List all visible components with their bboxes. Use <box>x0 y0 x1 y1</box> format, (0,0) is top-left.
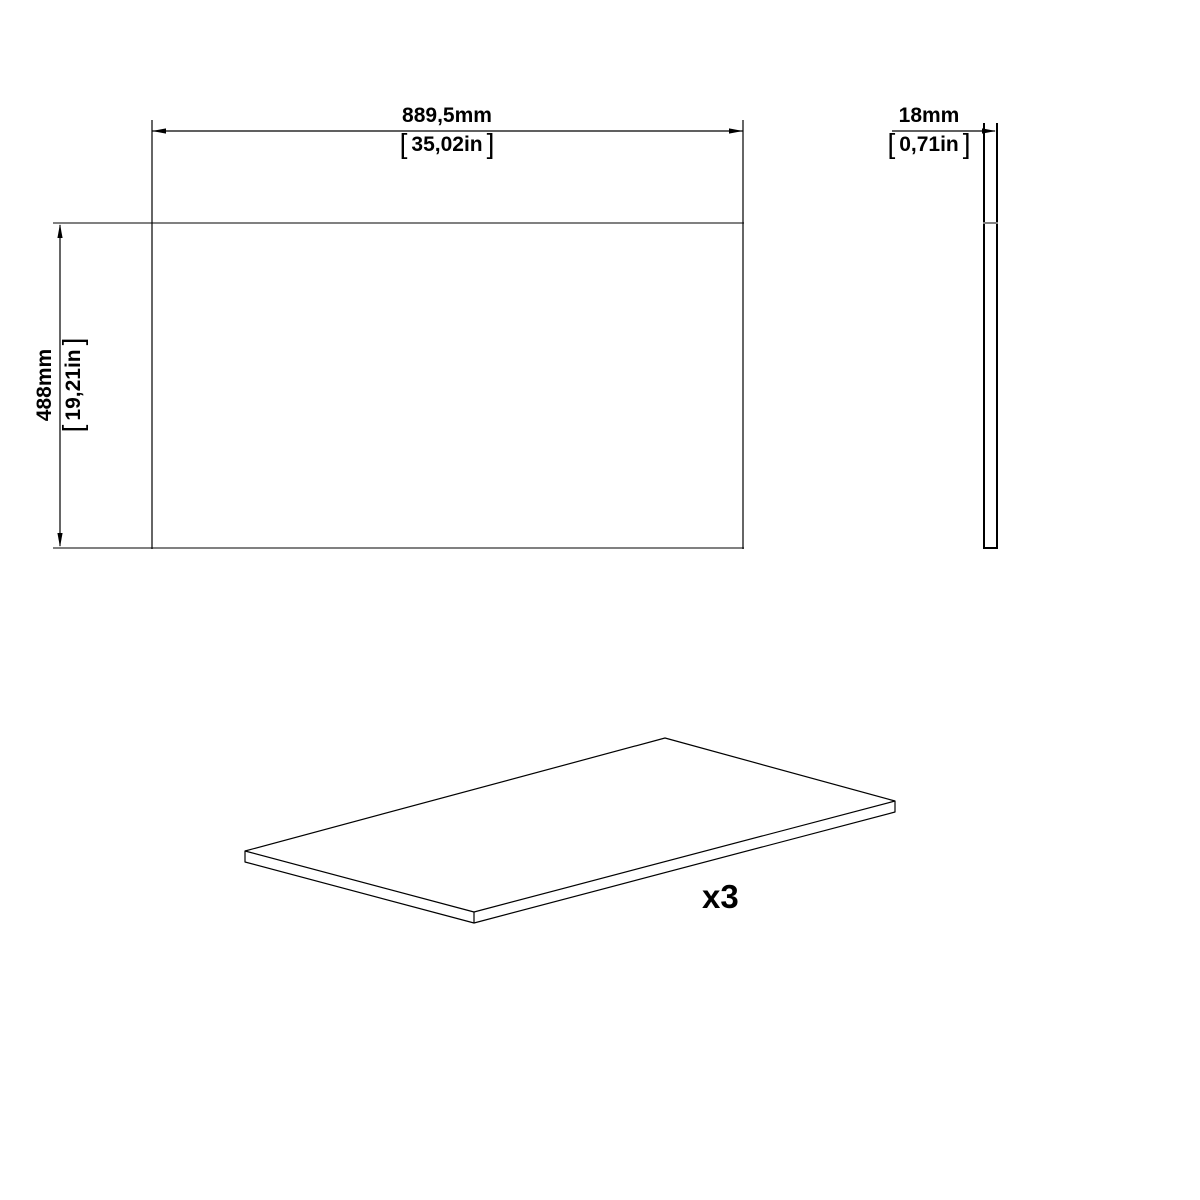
front-view <box>53 120 744 549</box>
height-metric-value: 488mm <box>33 334 57 437</box>
thickness-imperial-text: 0,71in <box>899 132 959 158</box>
width-imperial-text: 35,02in <box>411 132 482 158</box>
thickness-arrow-icon <box>982 128 996 133</box>
thickness-imperial-value: [0,71in] <box>883 132 974 158</box>
height-arrow-top-icon <box>57 224 62 238</box>
quantity-label: x3 <box>702 880 739 914</box>
height-dimension-label: 488mm [19,21in] <box>33 334 87 437</box>
thickness-metric-value: 18mm <box>883 104 974 128</box>
width-dimension-label: 889,5mm [35,02in] <box>396 104 499 158</box>
side-view <box>983 123 998 549</box>
bracket-open: [ <box>883 131 899 157</box>
height-imperial-value: [19,21in] <box>61 334 87 437</box>
technical-drawing-sheet: 889,5mm [35,02in] 488mm [19,21in] 18mm [… <box>0 0 1200 1200</box>
bracket-close: ] <box>60 334 86 350</box>
bracket-close: ] <box>483 131 499 157</box>
drawing-linework <box>0 0 1200 1200</box>
width-imperial-value: [35,02in] <box>396 132 499 158</box>
width-arrow-right-icon <box>729 128 743 133</box>
width-metric-value: 889,5mm <box>396 104 499 128</box>
width-arrow-left-icon <box>152 128 166 133</box>
bracket-open: [ <box>60 421 86 437</box>
height-imperial-text: 19,21in <box>61 349 87 420</box>
isometric-view <box>245 738 895 923</box>
bracket-close: ] <box>959 131 975 157</box>
bracket-open: [ <box>396 131 412 157</box>
height-arrow-bottom-icon <box>57 533 62 547</box>
isometric-panel-silhouette <box>245 738 895 923</box>
thickness-dimension-label: 18mm [0,71in] <box>883 104 974 158</box>
